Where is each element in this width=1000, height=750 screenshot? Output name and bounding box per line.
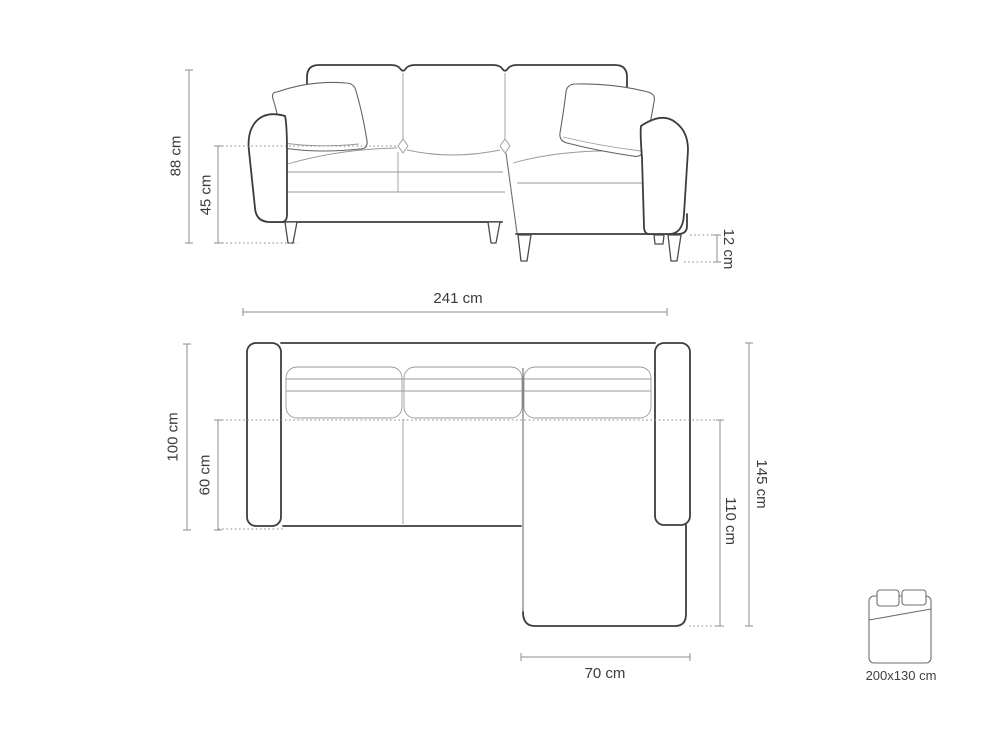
dim-label-leg-height: 12 cm	[720, 229, 737, 270]
chaise-front-edge	[506, 153, 517, 233]
dimension-line	[745, 343, 753, 626]
sleeping-area: 200x130 cm	[866, 590, 937, 683]
dim-label-total-height: 88 cm	[167, 136, 184, 177]
dimension-line	[214, 420, 222, 530]
reference-dotted-lines	[218, 420, 719, 626]
bed-pillow-left	[877, 590, 899, 606]
dimension-line	[243, 308, 667, 316]
sofa-legs	[285, 222, 681, 261]
chaise-outline	[523, 525, 686, 626]
dimension-total-depth: 145 cm	[745, 343, 770, 626]
dimension-total-width: 241 cm	[243, 290, 667, 316]
extension-dotted-lines	[684, 235, 713, 262]
dimension-line	[214, 146, 222, 243]
dim-label-seat-depth: 60 cm	[196, 455, 213, 496]
back-cushion-3	[524, 367, 651, 418]
bed-pillow-right	[902, 590, 926, 605]
back-cushion-2	[404, 367, 522, 418]
dimension-line	[521, 653, 690, 661]
corner-sofa-dimension-diagram: 88 cm 45 cm 12 cm 241 cm	[0, 0, 1000, 750]
armrest-left-top	[247, 343, 281, 526]
sofa-front-view: 88 cm 45 cm 12 cm	[167, 65, 737, 269]
sleeping-area-size-label: 200x130 cm	[866, 668, 937, 683]
back-cushion-1	[286, 367, 402, 418]
armrest-right-top	[655, 343, 690, 525]
back-cushion-seam-lines	[286, 379, 651, 391]
bed-icon	[869, 590, 931, 663]
dimension-total-height: 88 cm	[167, 70, 193, 243]
dim-label-side-depth: 100 cm	[164, 412, 181, 461]
dimension-leg-height: 12 cm	[684, 229, 737, 270]
armrest-left	[249, 114, 287, 222]
dimension-chaise-depth: 110 cm	[716, 420, 739, 626]
bed-blanket-fold	[869, 609, 931, 620]
seat-detail-lines	[280, 152, 686, 192]
dimension-seat-depth: 60 cm	[196, 420, 222, 530]
dimension-line	[185, 70, 193, 243]
sofa-top-view: 241 cm 100 cm 60 cm 145 cm 110 cm 70 cm	[164, 290, 770, 682]
dimension-seat-height: 45 cm	[197, 146, 397, 243]
dimension-line	[183, 344, 191, 530]
dim-label-seat-height: 45 cm	[197, 175, 214, 216]
dimension-chaise-width: 70 cm	[521, 653, 690, 682]
armrest-right	[641, 118, 688, 234]
dimension-side-depth: 100 cm	[164, 344, 191, 530]
dim-label-total-width: 241 cm	[433, 290, 482, 307]
extension-dotted-lines	[222, 146, 397, 243]
dim-label-chaise-depth: 110 cm	[722, 497, 739, 545]
dim-label-chaise-width: 70 cm	[585, 665, 626, 682]
dim-label-total-depth: 145 cm	[753, 459, 770, 508]
